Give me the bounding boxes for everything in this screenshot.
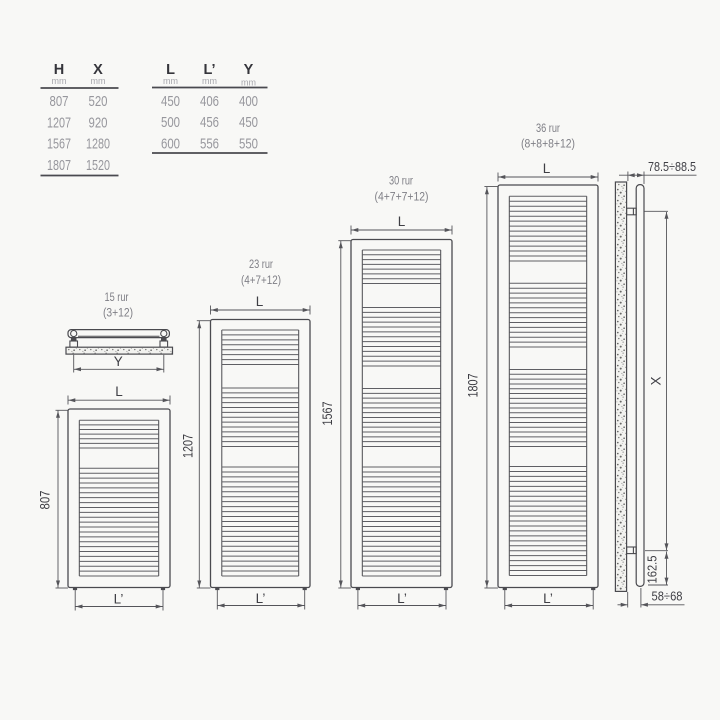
svg-text:456: 456 <box>200 114 219 131</box>
svg-text:mm: mm <box>52 76 67 86</box>
svg-text:mm: mm <box>202 76 217 86</box>
svg-text:L: L <box>256 294 264 309</box>
svg-text:1207: 1207 <box>181 434 196 458</box>
svg-text:520: 520 <box>89 93 108 110</box>
svg-text:920: 920 <box>89 114 108 131</box>
svg-text:L: L <box>115 384 123 399</box>
svg-text:(4+7+12): (4+7+12) <box>241 275 281 287</box>
svg-text:1520: 1520 <box>86 157 110 174</box>
svg-text:Y: Y <box>114 354 123 369</box>
svg-text:L: L <box>543 161 551 176</box>
svg-text:406: 406 <box>200 93 219 110</box>
svg-text:Y: Y <box>244 62 254 78</box>
svg-text:L’: L’ <box>256 591 266 606</box>
svg-text:556: 556 <box>200 136 219 153</box>
svg-text:450: 450 <box>239 114 258 131</box>
svg-text:(8+8+8+12): (8+8+8+12) <box>521 139 575 151</box>
svg-text:L: L <box>398 214 406 229</box>
svg-text:600: 600 <box>161 136 180 153</box>
svg-text:450: 450 <box>161 93 180 110</box>
svg-text:30 rur: 30 rur <box>389 176 413 188</box>
svg-text:1567: 1567 <box>320 402 335 426</box>
svg-text:550: 550 <box>239 136 258 153</box>
svg-text:X: X <box>649 376 664 385</box>
svg-text:1207: 1207 <box>47 114 71 131</box>
svg-text:1280: 1280 <box>86 136 110 153</box>
svg-text:L’: L’ <box>543 591 553 606</box>
svg-text:mm: mm <box>91 76 106 86</box>
svg-text:15 rur: 15 rur <box>105 292 129 304</box>
svg-text:mm: mm <box>241 78 256 88</box>
svg-text:1567: 1567 <box>47 136 71 153</box>
svg-text:L’: L’ <box>114 592 124 607</box>
svg-text:mm: mm <box>163 76 178 86</box>
svg-text:36 rur: 36 rur <box>536 123 560 135</box>
svg-text:807: 807 <box>50 93 69 110</box>
svg-text:78.5÷88.5: 78.5÷88.5 <box>648 159 696 174</box>
svg-text:58÷68: 58÷68 <box>652 589 683 604</box>
svg-text:L’: L’ <box>397 591 407 606</box>
svg-text:(4+7+7+12): (4+7+7+12) <box>375 192 429 204</box>
svg-text:807: 807 <box>38 491 53 510</box>
svg-text:23 rur: 23 rur <box>249 259 273 271</box>
svg-text:500: 500 <box>161 114 180 131</box>
svg-text:1807: 1807 <box>465 374 480 398</box>
svg-text:1807: 1807 <box>47 157 71 174</box>
svg-text:400: 400 <box>239 93 258 110</box>
svg-text:(3+12): (3+12) <box>103 308 133 320</box>
svg-text:162.5: 162.5 <box>645 556 660 584</box>
